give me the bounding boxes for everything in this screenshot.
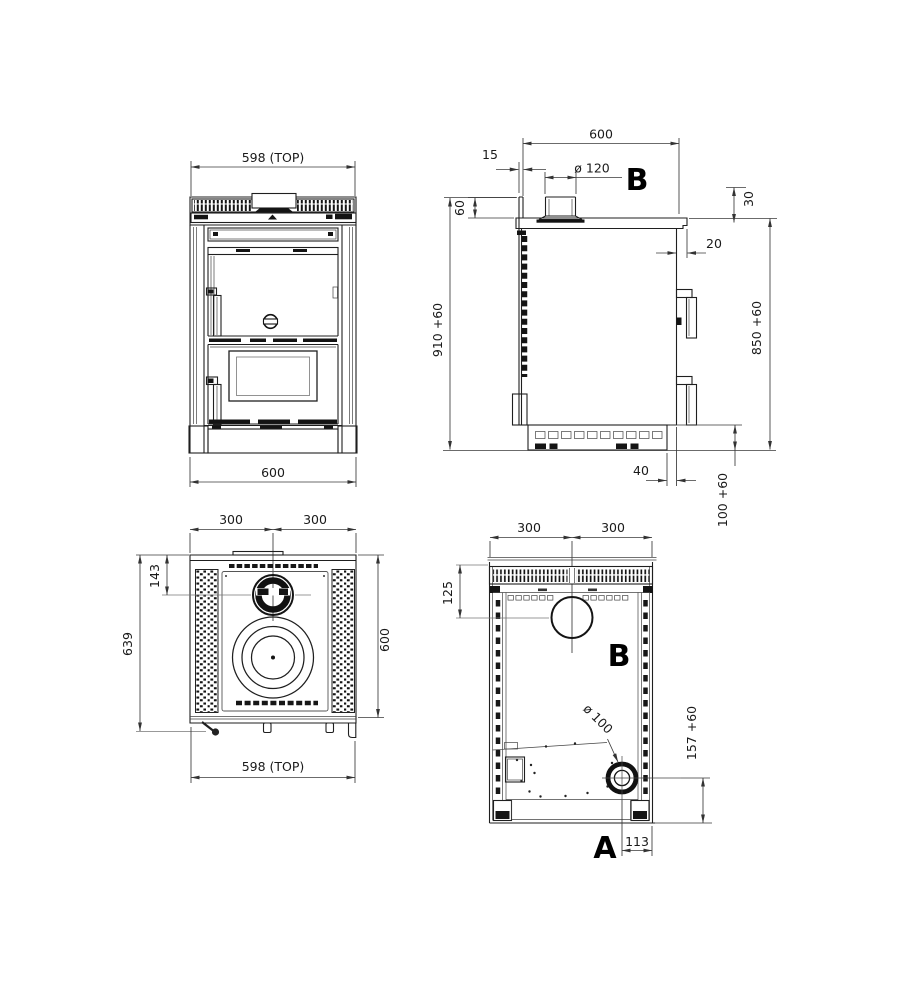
dim-label-base-height: 100 +60 — [715, 473, 730, 527]
flue-collar-side — [537, 197, 585, 223]
dim-label-upstand-height: 60 — [452, 200, 467, 216]
dim-label-top-half-right: 300 — [303, 512, 327, 527]
hotplate-rings — [233, 617, 314, 698]
dim-label-flue-drop: 125 — [440, 581, 455, 605]
door-latch-hook — [349, 723, 356, 738]
front-top-grille — [190, 194, 356, 226]
dim-label-worktop-height: 850 +60 — [749, 301, 764, 355]
firebox-door — [207, 228, 339, 345]
dim-overall-height: 910 +60 — [430, 198, 517, 450]
dim-depth-total: 639 — [120, 555, 206, 732]
dim-flue-diameter: ø 120 — [545, 161, 622, 195]
dim-label-top-width-bottom: 598 (TOP) — [242, 759, 305, 774]
oven-window — [229, 351, 317, 401]
front-view: 598 (TOP) — [189, 150, 357, 487]
dim-label-flue-setback: 15 — [482, 147, 498, 162]
rear-view: 300 300 — [440, 520, 712, 866]
rear-base — [490, 800, 656, 824]
dim-label-intake-diameter: ø 100 — [580, 701, 616, 737]
dim-label-rear-half-left: 300 — [517, 520, 541, 535]
flue-collar-front — [252, 194, 296, 209]
flame-logo — [268, 215, 277, 220]
dim-base-recess: 40 — [633, 427, 696, 486]
flue-collar-top — [253, 575, 293, 615]
dim-label-flue-center: 143 — [147, 564, 162, 588]
firebox-handle — [207, 288, 222, 336]
dim-base-height: 100 +60 — [670, 425, 742, 527]
dim-label-top-half-left: 300 — [219, 512, 243, 527]
oven-handle-side — [677, 377, 697, 426]
side-base — [528, 425, 667, 450]
dim-flue-setback: 15 — [482, 147, 546, 193]
dim-front-bottom-width: 600 — [190, 457, 356, 487]
side-view: 600 15 ø 120 B 30 20 910 +60 — [430, 127, 777, 528]
air-control-knob — [264, 315, 278, 329]
model-label — [335, 214, 352, 220]
dim-intake-offset: 113 — [622, 800, 652, 856]
door-hinge — [326, 723, 334, 733]
intake-label-a: A — [593, 831, 617, 866]
drawing-page: 598 (TOP) — [0, 0, 900, 1000]
top-body — [190, 552, 356, 738]
rear-body — [488, 558, 682, 824]
oven-door — [207, 345, 339, 425]
dim-intake-diameter: ø 100 — [580, 701, 618, 762]
dim-rear-halves: 300 300 — [490, 520, 652, 653]
rear-panel-screws — [516, 742, 613, 797]
rear-connection-box — [513, 394, 528, 425]
dim-top-edge: 30 — [726, 188, 756, 223]
dim-upstand-height: 60 — [452, 198, 516, 219]
dim-label-intake-offset: 113 — [625, 834, 649, 849]
operating-lever — [202, 722, 219, 736]
dim-label-depth-total: 639 — [120, 632, 135, 656]
dim-top-depth: 600 — [358, 555, 392, 718]
dim-label-base-recess: 40 — [633, 463, 649, 478]
flue-outlet-label-b: B — [626, 163, 649, 198]
front-base — [189, 426, 357, 454]
dim-label-top-overhang: 20 — [706, 236, 722, 251]
junction-box — [506, 757, 525, 782]
dim-label-front-top-width: 598 (TOP) — [242, 150, 305, 165]
brand-logo — [194, 215, 208, 220]
dim-front-top-width: 598 (TOP) — [191, 150, 355, 196]
dim-label-top-edge: 30 — [741, 191, 756, 207]
oven-handle — [207, 377, 222, 425]
dim-label-side-depth: 600 — [589, 127, 613, 142]
dim-label-rear-half-right: 300 — [601, 520, 625, 535]
side-body — [443, 197, 776, 451]
door-hinge — [264, 723, 272, 733]
flue-hole-label-b: B — [608, 639, 631, 674]
stove-technical-drawing: 598 (TOP) — [0, 0, 900, 1000]
front-control-strip — [190, 213, 356, 225]
dim-intake-height: 157 +60 — [655, 706, 712, 823]
dim-label-flue-diameter: ø 120 — [574, 161, 610, 176]
dim-label-front-bottom-width: 600 — [261, 465, 285, 480]
dim-label-intake-height: 157 +60 — [684, 706, 699, 760]
dim-top-overhang: 20 — [656, 229, 722, 258]
firebox-handle-side — [677, 290, 697, 339]
dim-label-overall-height: 910 +60 — [430, 303, 445, 357]
dim-label-top-depth: 600 — [377, 628, 392, 652]
rear-top-grille — [490, 567, 653, 585]
top-view: 300 300 — [120, 512, 392, 783]
